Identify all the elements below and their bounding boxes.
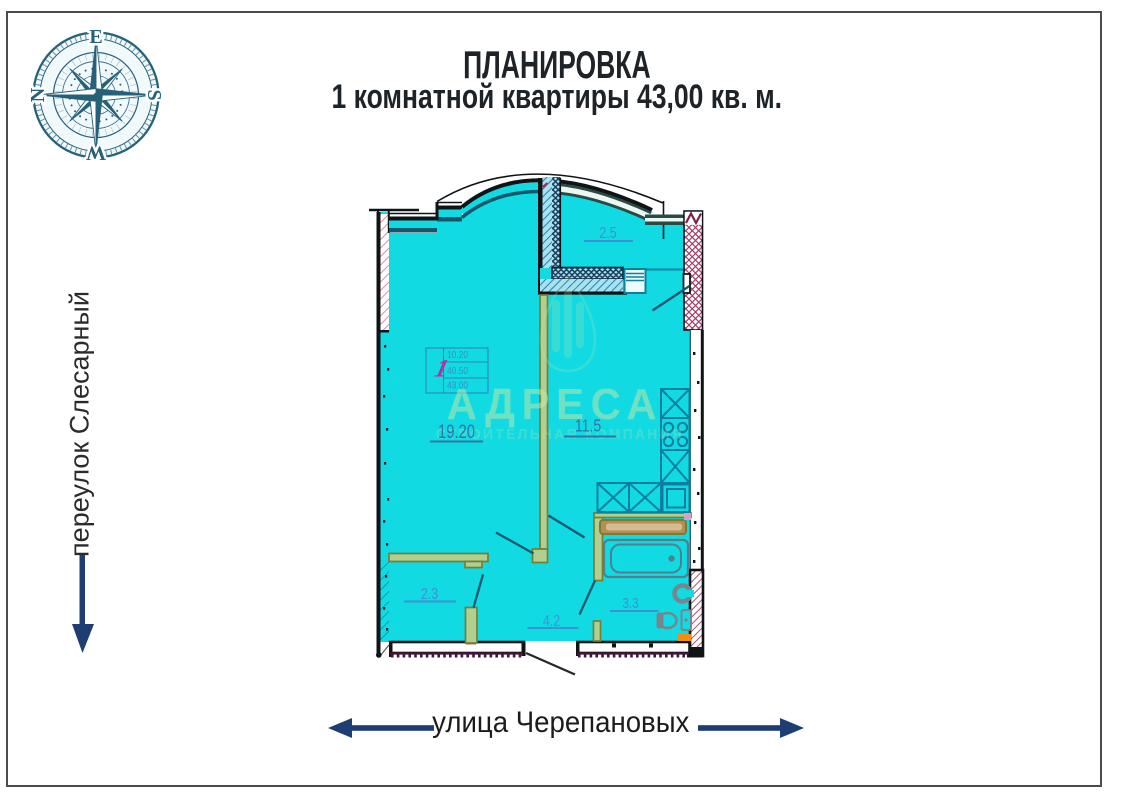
- svg-text:11.5: 11.5: [575, 416, 601, 436]
- svg-text:3.3: 3.3: [622, 595, 638, 612]
- svg-text:АДРЕСА: АДРЕСА: [447, 380, 663, 429]
- svg-text:40.50: 40.50: [447, 365, 468, 377]
- svg-text:19.20: 19.20: [438, 421, 475, 442]
- svg-text:2.5: 2.5: [599, 225, 616, 243]
